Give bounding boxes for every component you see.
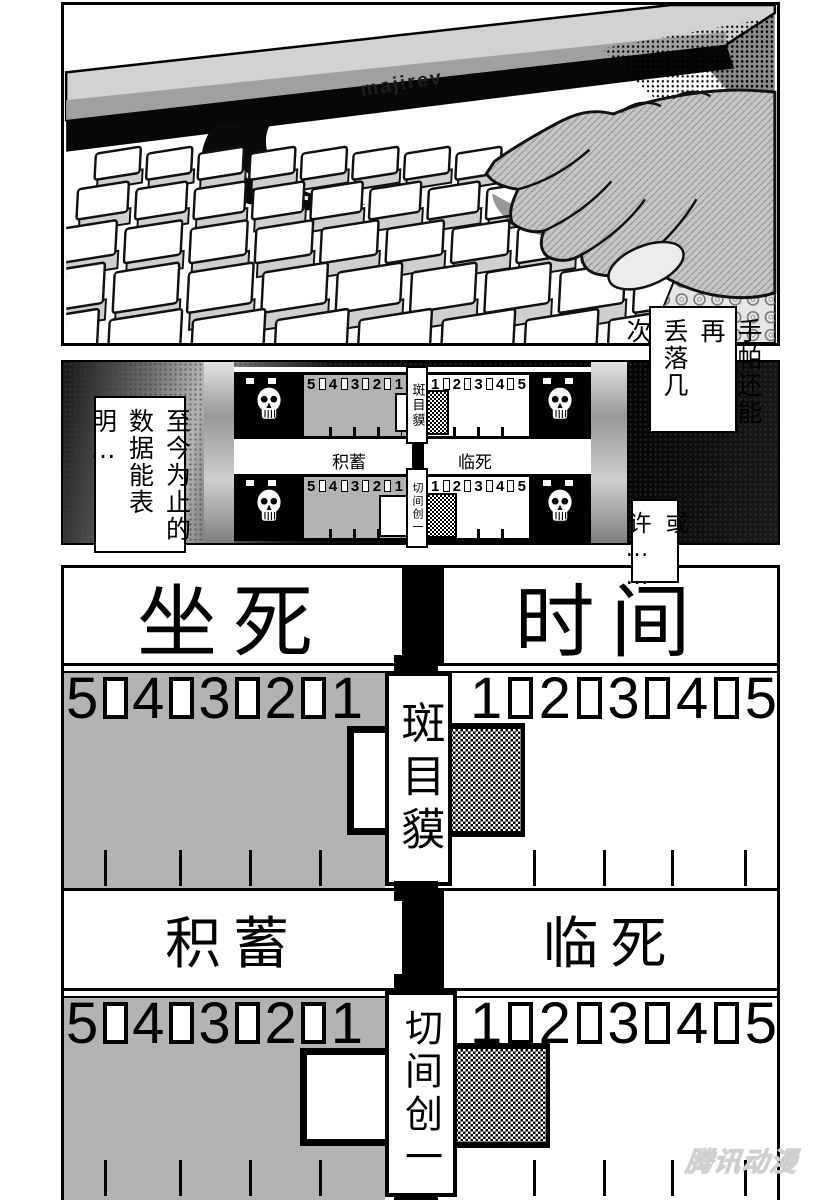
watermark: 腾讯动漫 [684, 1140, 800, 1179]
scale-number: 4 [496, 479, 504, 494]
scale-number: 5 [66, 674, 98, 724]
skull-band [529, 477, 591, 538]
half-step-marker [645, 677, 670, 719]
half-step-marker [714, 677, 739, 719]
half-step-marker [341, 378, 348, 390]
scale-number: 2 [453, 377, 461, 392]
panel-keyboard-scene: majirev [61, 2, 780, 346]
half-step-marker [714, 1002, 739, 1044]
scale-tick [671, 1160, 674, 1196]
marker-white-box [347, 726, 387, 835]
half-step-marker [464, 480, 471, 492]
scale-number: 3 [474, 377, 482, 392]
scale-numbers-left: 54321 [66, 674, 383, 730]
half-step-marker [508, 1002, 533, 1044]
label-sit-death: 坐死 [64, 568, 402, 663]
scale-number: 3 [198, 999, 230, 1049]
skull-band [529, 375, 591, 436]
half-step-marker [464, 378, 471, 390]
scale-number: 4 [132, 674, 164, 724]
half-step-marker [235, 1002, 260, 1044]
half-step-marker [301, 1002, 326, 1044]
half-step-marker [508, 677, 533, 719]
scale-number: 2 [265, 999, 297, 1049]
marker-checkered-box [453, 1043, 550, 1148]
scale-number: 4 [329, 479, 337, 494]
half-step-marker [443, 480, 450, 492]
half-step-marker [577, 1002, 602, 1044]
strip-tab [394, 655, 438, 675]
speech-text: 至今为止的 [159, 408, 196, 551]
player2-name-strip: 切间创一 [385, 991, 457, 1197]
scale-number: 2 [539, 674, 571, 724]
scale-tick [533, 850, 536, 886]
scale-number: 3 [474, 479, 482, 494]
half-step-marker [507, 378, 514, 390]
speech-bubble-data: 至今为止的 数据能表明… [94, 396, 186, 553]
half-step-marker [103, 1002, 128, 1044]
player2-name: 切间创一 [409, 482, 425, 534]
scale-number: 5 [518, 479, 526, 494]
skull-icon [253, 385, 285, 427]
scale-number: 1 [395, 479, 403, 494]
scale-number: 2 [373, 479, 381, 494]
scale-tick [671, 850, 674, 886]
scale-tick [744, 850, 747, 886]
speech-text: 手帕还能再 [693, 318, 767, 431]
half-step-marker [645, 1002, 670, 1044]
skull-band [234, 477, 304, 538]
half-step-marker [319, 480, 326, 492]
speech-text: 或许…… [618, 511, 692, 581]
marker-white-box [379, 495, 408, 537]
scale-number: 1 [470, 674, 502, 724]
player2-name: 切间创一 [394, 1008, 449, 1180]
half-step-marker [362, 480, 369, 492]
scale-numbers-left: 54321 [66, 999, 383, 1055]
half-step-marker [169, 677, 194, 719]
label-time: 时间 [444, 568, 777, 663]
speech-bubble-handkerchief: 手帕还能再 丢落几次… [649, 306, 737, 433]
half-step-marker [301, 677, 326, 719]
scale-number: 3 [607, 674, 639, 724]
scale-number: 5 [66, 999, 98, 1049]
label-near-death-mini: 临死 [442, 448, 508, 473]
label-savings: 积蓄 [64, 891, 402, 988]
monitor-frame-left [204, 362, 234, 543]
half-step-marker [341, 480, 348, 492]
label-near-death: 临死 [444, 891, 777, 988]
marker-checkered-box [426, 493, 457, 538]
scale-number: 4 [676, 999, 708, 1049]
marker-checkered-box [426, 390, 449, 435]
scale-number: 4 [496, 377, 504, 392]
scale-tick [179, 1160, 182, 1196]
keyboard-scene-art: majirev [64, 5, 777, 343]
scale-number: 1 [470, 999, 502, 1049]
scale-tick [603, 850, 606, 886]
scale-number: 1 [395, 377, 403, 392]
scale-tick [249, 1160, 252, 1196]
marker-white-box [300, 1048, 386, 1146]
scale-number: 3 [607, 999, 639, 1049]
scale-number: 3 [351, 479, 359, 494]
scale-number: 2 [453, 479, 461, 494]
player1-name-strip: 斑目貘 [406, 366, 428, 444]
scale-number: 3 [198, 674, 230, 724]
scale-number: 4 [676, 674, 708, 724]
label-savings-mini: 积蓄 [318, 448, 380, 473]
half-step-marker [507, 480, 514, 492]
half-step-marker [169, 1002, 194, 1044]
computer-screen: 54321 12345 积蓄 临死 [234, 367, 591, 541]
panel-gauges-large: 坐死 时间 54321 12345 斑目貘 积蓄 临死 [61, 565, 780, 1200]
strip-tab [394, 1195, 438, 1200]
player1-name-strip: 斑目貘 [385, 672, 452, 886]
center-bar [402, 565, 444, 666]
skull-icon [544, 487, 576, 529]
speech-text: 数据能表明… [85, 408, 159, 551]
half-step-marker [235, 677, 260, 719]
scale-left-mini: 54321 [304, 375, 406, 436]
scale-number: 5 [307, 377, 315, 392]
scale-number: 1 [331, 674, 363, 724]
scale-number: 3 [351, 377, 359, 392]
scale-number: 1 [431, 479, 439, 494]
half-step-marker [362, 378, 369, 390]
scale-number: 5 [307, 479, 315, 494]
half-step-marker [103, 677, 128, 719]
scale-number: 5 [745, 674, 777, 724]
marker-checkered-box [448, 723, 525, 837]
scale-tick [104, 850, 107, 886]
scale-numbers-right: 12345 [456, 674, 777, 730]
scale-tick [249, 850, 252, 886]
half-step-marker [577, 677, 602, 719]
scale-tick [533, 1160, 536, 1196]
half-step-marker [486, 378, 493, 390]
strip-tab [394, 881, 438, 901]
speech-bubble-perhaps: 或许…… [631, 499, 679, 583]
skull-icon [544, 385, 576, 427]
scale-tick [104, 1160, 107, 1196]
manga-page: majirev [0, 0, 840, 1200]
scale-tick [319, 850, 322, 886]
scale-number: 4 [329, 377, 337, 392]
player1-name: 斑目貘 [408, 383, 427, 428]
player2-name-strip: 切间创一 [406, 468, 428, 548]
scale-tick [603, 1160, 606, 1196]
scale-number: 4 [132, 999, 164, 1049]
half-step-marker [486, 480, 493, 492]
speech-text: 丢落几次… [619, 318, 693, 431]
scale-number: 2 [373, 377, 381, 392]
player1-name: 斑目貘 [387, 700, 451, 859]
scale-number: 1 [331, 999, 363, 1049]
scale-number: 5 [518, 377, 526, 392]
half-step-marker [384, 480, 391, 492]
scale-number: 2 [265, 674, 297, 724]
half-step-marker [443, 378, 450, 390]
skull-icon [253, 487, 285, 529]
scale-tick [319, 1160, 322, 1196]
half-step-marker [384, 378, 391, 390]
scale-number: 2 [539, 999, 571, 1049]
scale-ticks [308, 427, 402, 436]
skull-band [234, 375, 304, 436]
scale-number: 5 [745, 999, 777, 1049]
strip-tab [394, 974, 438, 995]
scale-tick [179, 850, 182, 886]
half-step-marker [319, 378, 326, 390]
